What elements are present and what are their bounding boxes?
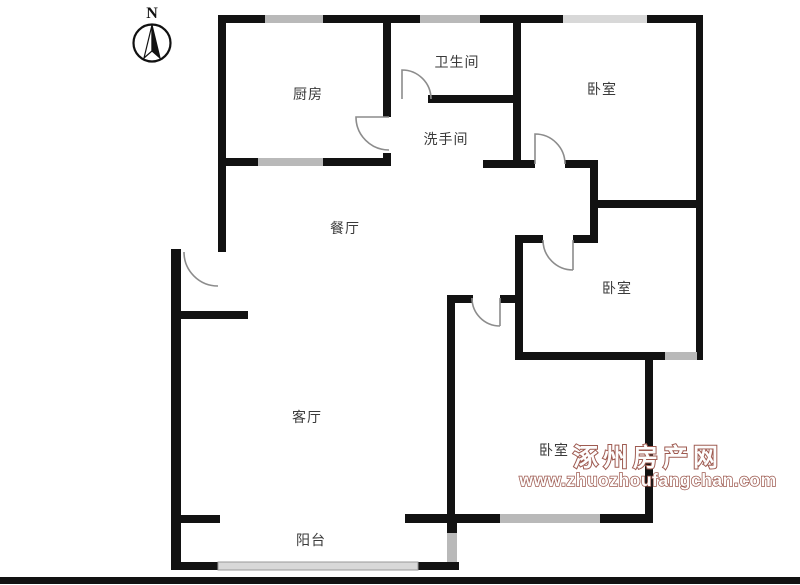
wall-segment xyxy=(405,514,500,523)
window-kitchen-top xyxy=(265,15,323,23)
room-label-bedroom-east: 卧室 xyxy=(602,280,632,296)
room-label-washroom: 洗手间 xyxy=(424,131,469,147)
wall-segment xyxy=(590,160,598,243)
wall-segment xyxy=(515,352,665,360)
walls xyxy=(0,15,800,584)
wall-segment xyxy=(573,235,598,243)
wall-segment xyxy=(645,352,653,522)
room-label-living: 客厅 xyxy=(292,409,322,425)
room-label-kitchen: 厨房 xyxy=(293,86,323,102)
door-kitchen xyxy=(356,117,389,150)
compass-needle-east xyxy=(152,25,160,58)
wall-segment xyxy=(171,249,181,570)
compass-north-label: N xyxy=(146,5,158,22)
wall-segment xyxy=(513,15,521,168)
window-balcony-right xyxy=(447,533,457,562)
wall-segment xyxy=(483,160,535,168)
floorplan: N 厨房 卫生间 洗手间 卧室 餐厅 卧室 客厅 卧室 阳台 涿州房产网 www… xyxy=(0,0,800,585)
door-bedroom-south xyxy=(472,298,500,326)
compass-icon: N xyxy=(134,5,171,62)
wall-segment xyxy=(500,295,515,303)
wall-segment xyxy=(696,15,703,360)
wall-segment xyxy=(218,15,226,252)
window-balcony-long xyxy=(218,562,418,570)
door-entrance xyxy=(184,252,218,286)
room-label-bedroom-south: 卧室 xyxy=(539,442,569,458)
watermark-site-name: 涿州房产网 xyxy=(573,443,723,472)
wall-segment xyxy=(428,95,521,103)
window-bedroom-north-top xyxy=(563,15,647,23)
window-bedroom-south-bottom xyxy=(500,514,600,523)
wall-segment xyxy=(515,235,523,360)
wall-segment xyxy=(171,311,248,319)
room-label-bathroom: 卫生间 xyxy=(435,54,480,70)
floorplan-canvas: N 厨房 卫生间 洗手间 卧室 餐厅 卧室 客厅 卧室 阳台 涿州房产网 www… xyxy=(0,0,800,585)
window-bathroom-top xyxy=(420,15,480,23)
wall-segment xyxy=(178,515,220,523)
wall-segment xyxy=(600,514,653,523)
image-bottom-border xyxy=(0,577,800,584)
watermark-site-url: www.zhuozhoufangchan.com xyxy=(518,470,776,490)
room-label-bedroom-north: 卧室 xyxy=(587,81,617,97)
compass-needle-west xyxy=(144,25,152,58)
door-bedroom-east xyxy=(543,240,573,270)
room-label-balcony: 阳台 xyxy=(296,532,326,548)
room-label-dining: 餐厅 xyxy=(330,220,360,236)
wall-segment xyxy=(383,15,391,117)
door-bathroom xyxy=(402,70,431,99)
window-bedroom-east-bottom xyxy=(665,352,697,360)
door-bedroom-north xyxy=(535,134,565,164)
window-kitchen-bottom xyxy=(258,158,323,166)
wall-segment xyxy=(171,562,218,570)
wall-segment xyxy=(447,295,455,523)
wall-segment xyxy=(598,200,703,208)
